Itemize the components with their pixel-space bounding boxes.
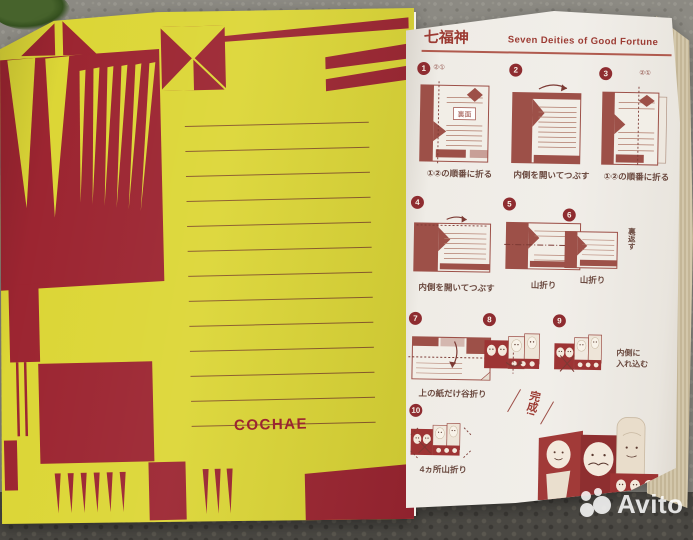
step-6-diagram [562,225,621,272]
step-caption: 4ヵ所山折り [408,464,478,476]
watermark-text: Avito [617,489,684,520]
step-2-diagram [508,80,587,167]
step-1-diagram: 裏面 [416,79,495,166]
step-number-badge: 8 [483,313,496,326]
step-number-badge: 3 [599,67,612,80]
step-caption: 内側を開いてつぶす [507,169,595,181]
step-2: 2 [507,63,597,181]
back-side-label: 裏面 [457,110,471,119]
origami-paper-page: COCHAE [0,8,414,524]
step-3-diagram [598,84,671,169]
origami-pattern-graphic [0,8,414,524]
tuck-inside-note-line1: 内側に [616,347,658,359]
step-number-badge: 1 [417,62,430,75]
step-10-diagram [408,421,475,462]
step-caption: 山折り [562,274,624,286]
step-number-badge: 6 [563,208,576,221]
page-title-english: Seven Deities of Good Fortune [508,34,659,48]
step-6: 6 裏返す 山折り [562,208,625,286]
flip-over-note: 裏返す [626,228,637,251]
tuck-inside-note-line2: 入れ込む [616,359,658,371]
step-4: 4 内側を開 [409,196,505,294]
brand-logo: COCHAE [234,415,334,434]
step-number-badge: 5 [503,197,516,210]
step-number-badge: 2 [509,63,522,76]
step-caption: ①②の順番に折る [597,171,675,183]
step-9-diagram [552,331,609,378]
fold-order-label: ②① [639,69,651,77]
step-number-badge: 7 [409,312,422,325]
watermark: Avito [578,486,684,522]
step-number-badge: 10 [409,404,422,417]
step-caption: ①②の順番に折る [415,168,503,180]
instruction-page: 七福神 Seven Deities of Good Fortune 1 ②① [406,8,680,508]
step-caption: 上の紙だけ谷折り [408,388,498,400]
page-title-japanese: 七福神 [424,26,469,48]
step-9: 9 内側に [552,314,613,378]
step-caption: 内側を開いてつぶす [409,282,503,294]
avito-logo-icon [578,486,612,522]
step-number-badge: 4 [411,196,424,209]
photo-of-open-origami-book: COCHAE 七福神 Seven Deities of Good Fortune… [0,0,693,540]
open-book: COCHAE 七福神 Seven Deities of Good Fortune… [0,0,693,540]
step-8-diagram [482,330,549,375]
title-underline [422,50,672,56]
step-8: 8 [482,313,553,375]
step-1: 1 ②① 裏面 [415,62,505,180]
step-3: 3 ②① [597,67,677,183]
step-4-diagram [410,213,495,280]
fold-order-label: ②① [433,63,445,71]
step-10: 10 [408,404,479,476]
step-number-badge: 9 [553,314,566,327]
